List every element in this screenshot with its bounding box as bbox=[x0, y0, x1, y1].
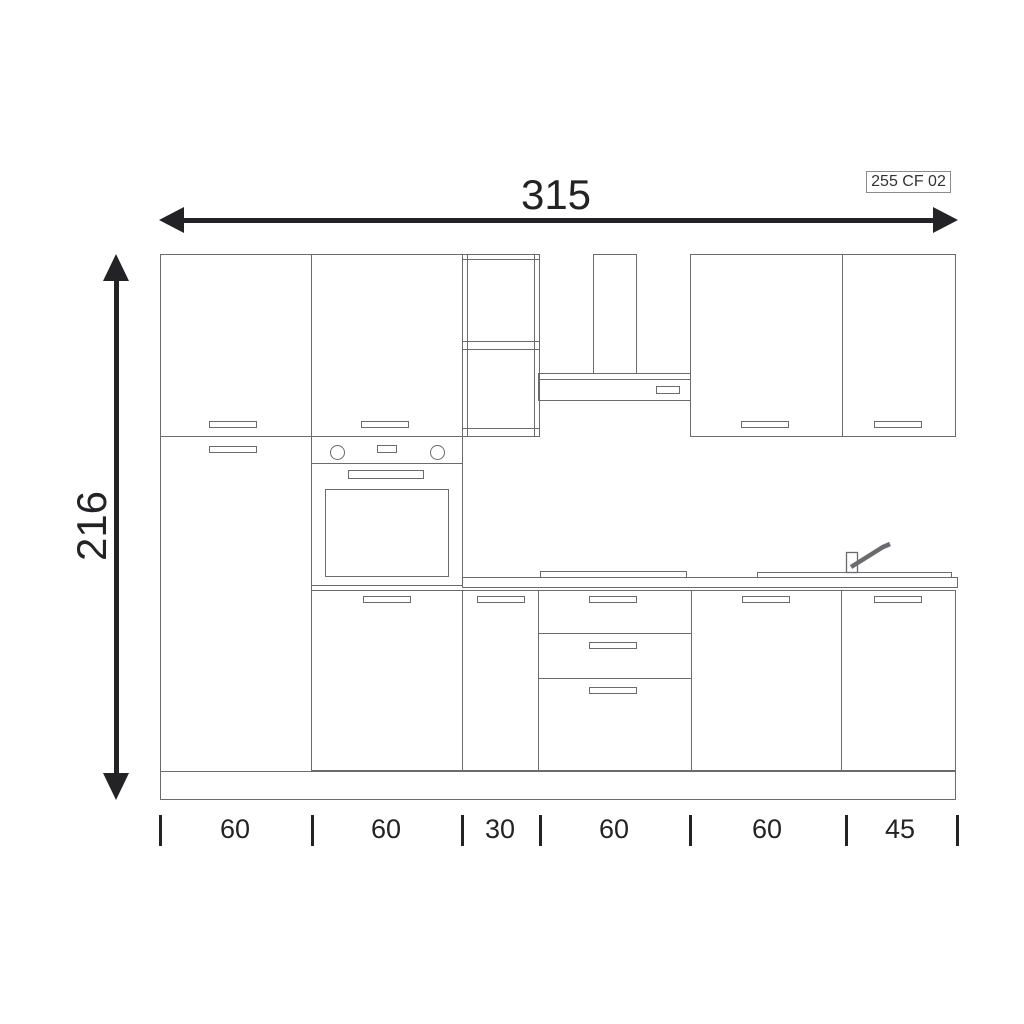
height-arrow-head-top bbox=[103, 254, 129, 281]
dimension-tick bbox=[956, 815, 959, 846]
dimension-tick bbox=[845, 815, 848, 846]
width-arrow-shaft bbox=[183, 218, 935, 223]
hood-inner-line bbox=[539, 379, 690, 380]
dimension-tick bbox=[689, 815, 692, 846]
base-door-60 bbox=[691, 590, 842, 771]
segment-dimension-label: 45 bbox=[885, 816, 915, 843]
segment-dimension-label: 60 bbox=[371, 816, 401, 843]
base-door-30-handle bbox=[477, 596, 525, 603]
oven-base-door bbox=[311, 590, 463, 771]
base-door-45-handle bbox=[874, 596, 922, 603]
dimension-tick bbox=[159, 815, 162, 846]
hood-chimney bbox=[593, 254, 637, 374]
base-door-30 bbox=[462, 590, 539, 771]
tall-cabinet-upper-door bbox=[160, 254, 312, 437]
oven-knob-left bbox=[330, 445, 345, 460]
width-arrow-head-right bbox=[933, 207, 958, 233]
segment-dimension-label: 30 bbox=[485, 816, 515, 843]
tall-cabinet-upper-door-handle bbox=[209, 421, 257, 428]
width-arrow-head-left bbox=[159, 207, 184, 233]
height-arrow-head-bottom bbox=[103, 773, 129, 800]
wall-cabinet-right-2-handle bbox=[874, 421, 922, 428]
wall-cabinet-over-oven-handle bbox=[361, 421, 409, 428]
hood-control bbox=[656, 386, 680, 394]
kitchen-elevation-drawing: 315 255 CF 02 216 bbox=[0, 0, 1024, 1024]
plinth bbox=[160, 771, 956, 800]
dimension-tick bbox=[311, 815, 314, 846]
base-door-45 bbox=[841, 590, 956, 771]
open-shelf-middle-panel bbox=[462, 341, 540, 350]
oven-display bbox=[377, 445, 397, 453]
open-shelf-top-panel bbox=[462, 254, 540, 260]
dimension-tick bbox=[539, 815, 542, 846]
drawer-2 bbox=[538, 633, 692, 679]
faucet bbox=[840, 538, 900, 578]
wall-cabinet-right-pair bbox=[690, 254, 956, 437]
oven-base-door-handle bbox=[363, 596, 411, 603]
height-dimension-label: 216 bbox=[71, 491, 113, 561]
open-shelf-bottom-panel bbox=[462, 428, 540, 437]
drawing-code-label: 255 CF 02 bbox=[871, 173, 946, 190]
countertop bbox=[462, 577, 958, 588]
oven-knob-right bbox=[430, 445, 445, 460]
tall-cabinet-lower-door bbox=[160, 436, 312, 772]
drawer-3-handle bbox=[589, 687, 637, 694]
segment-dimension-label: 60 bbox=[220, 816, 250, 843]
drawer-1-handle bbox=[589, 596, 637, 603]
drawing-code-box: 255 CF 02 bbox=[866, 171, 951, 193]
oven-door-window bbox=[325, 489, 449, 577]
wall-cabinet-over-oven bbox=[311, 254, 463, 437]
dimension-tick bbox=[461, 815, 464, 846]
wall-cabinet-right-1-handle bbox=[741, 421, 789, 428]
segment-dimension-label: 60 bbox=[752, 816, 782, 843]
base-door-60-handle bbox=[742, 596, 790, 603]
width-dimension-label: 315 bbox=[521, 174, 591, 216]
drawer-2-handle bbox=[589, 642, 637, 649]
segment-dimension-label: 60 bbox=[599, 816, 629, 843]
tall-cabinet-lower-door-handle bbox=[209, 446, 257, 453]
oven-handle-bar bbox=[348, 470, 424, 479]
wall-cabinet-right-divider bbox=[842, 255, 843, 436]
cooktop bbox=[540, 571, 687, 578]
